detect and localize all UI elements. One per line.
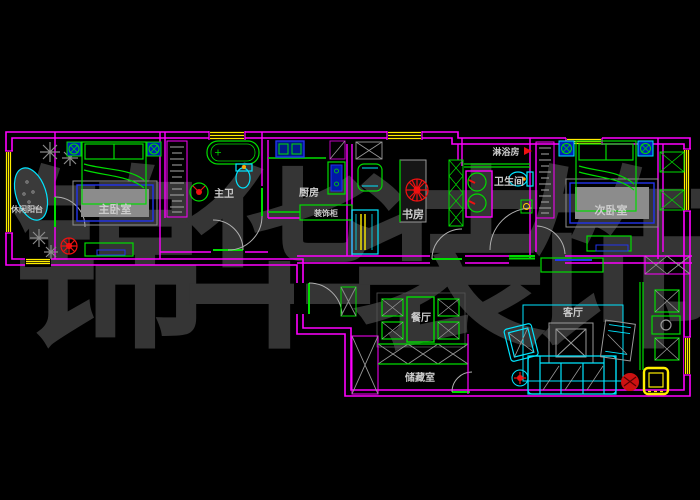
ceiling-fan-symbol	[406, 179, 428, 201]
kitchen-sink	[276, 141, 304, 157]
room-label-storage-room: 储藏室	[404, 371, 435, 384]
fan-symbol-bedroom	[61, 238, 77, 254]
stove	[328, 162, 345, 194]
coffee-table	[549, 323, 593, 363]
room-label-second-bedroom: 次卧室	[595, 203, 628, 217]
room-label-study: 书房	[402, 207, 424, 221]
room-label-leisure-balcony: 休闲阳台	[10, 204, 43, 214]
floor-plan-canvas: 锦华装饰	[0, 0, 700, 500]
room-label-shower-room: 淋浴房	[492, 146, 519, 158]
room-label-master-bath: 主卫	[214, 187, 234, 200]
room-label-kitchen: 厨房	[299, 186, 319, 199]
room-label-master-bedroom: 主卧室	[99, 202, 132, 216]
room-label-dining-room: 餐厅	[410, 311, 431, 324]
room-label-living-room: 客厅	[562, 306, 583, 319]
floor-lamp	[512, 370, 528, 386]
room-label-bathroom: 卫生间	[494, 175, 524, 188]
room-label-deco-cabinet: 装饰柜	[313, 208, 338, 218]
